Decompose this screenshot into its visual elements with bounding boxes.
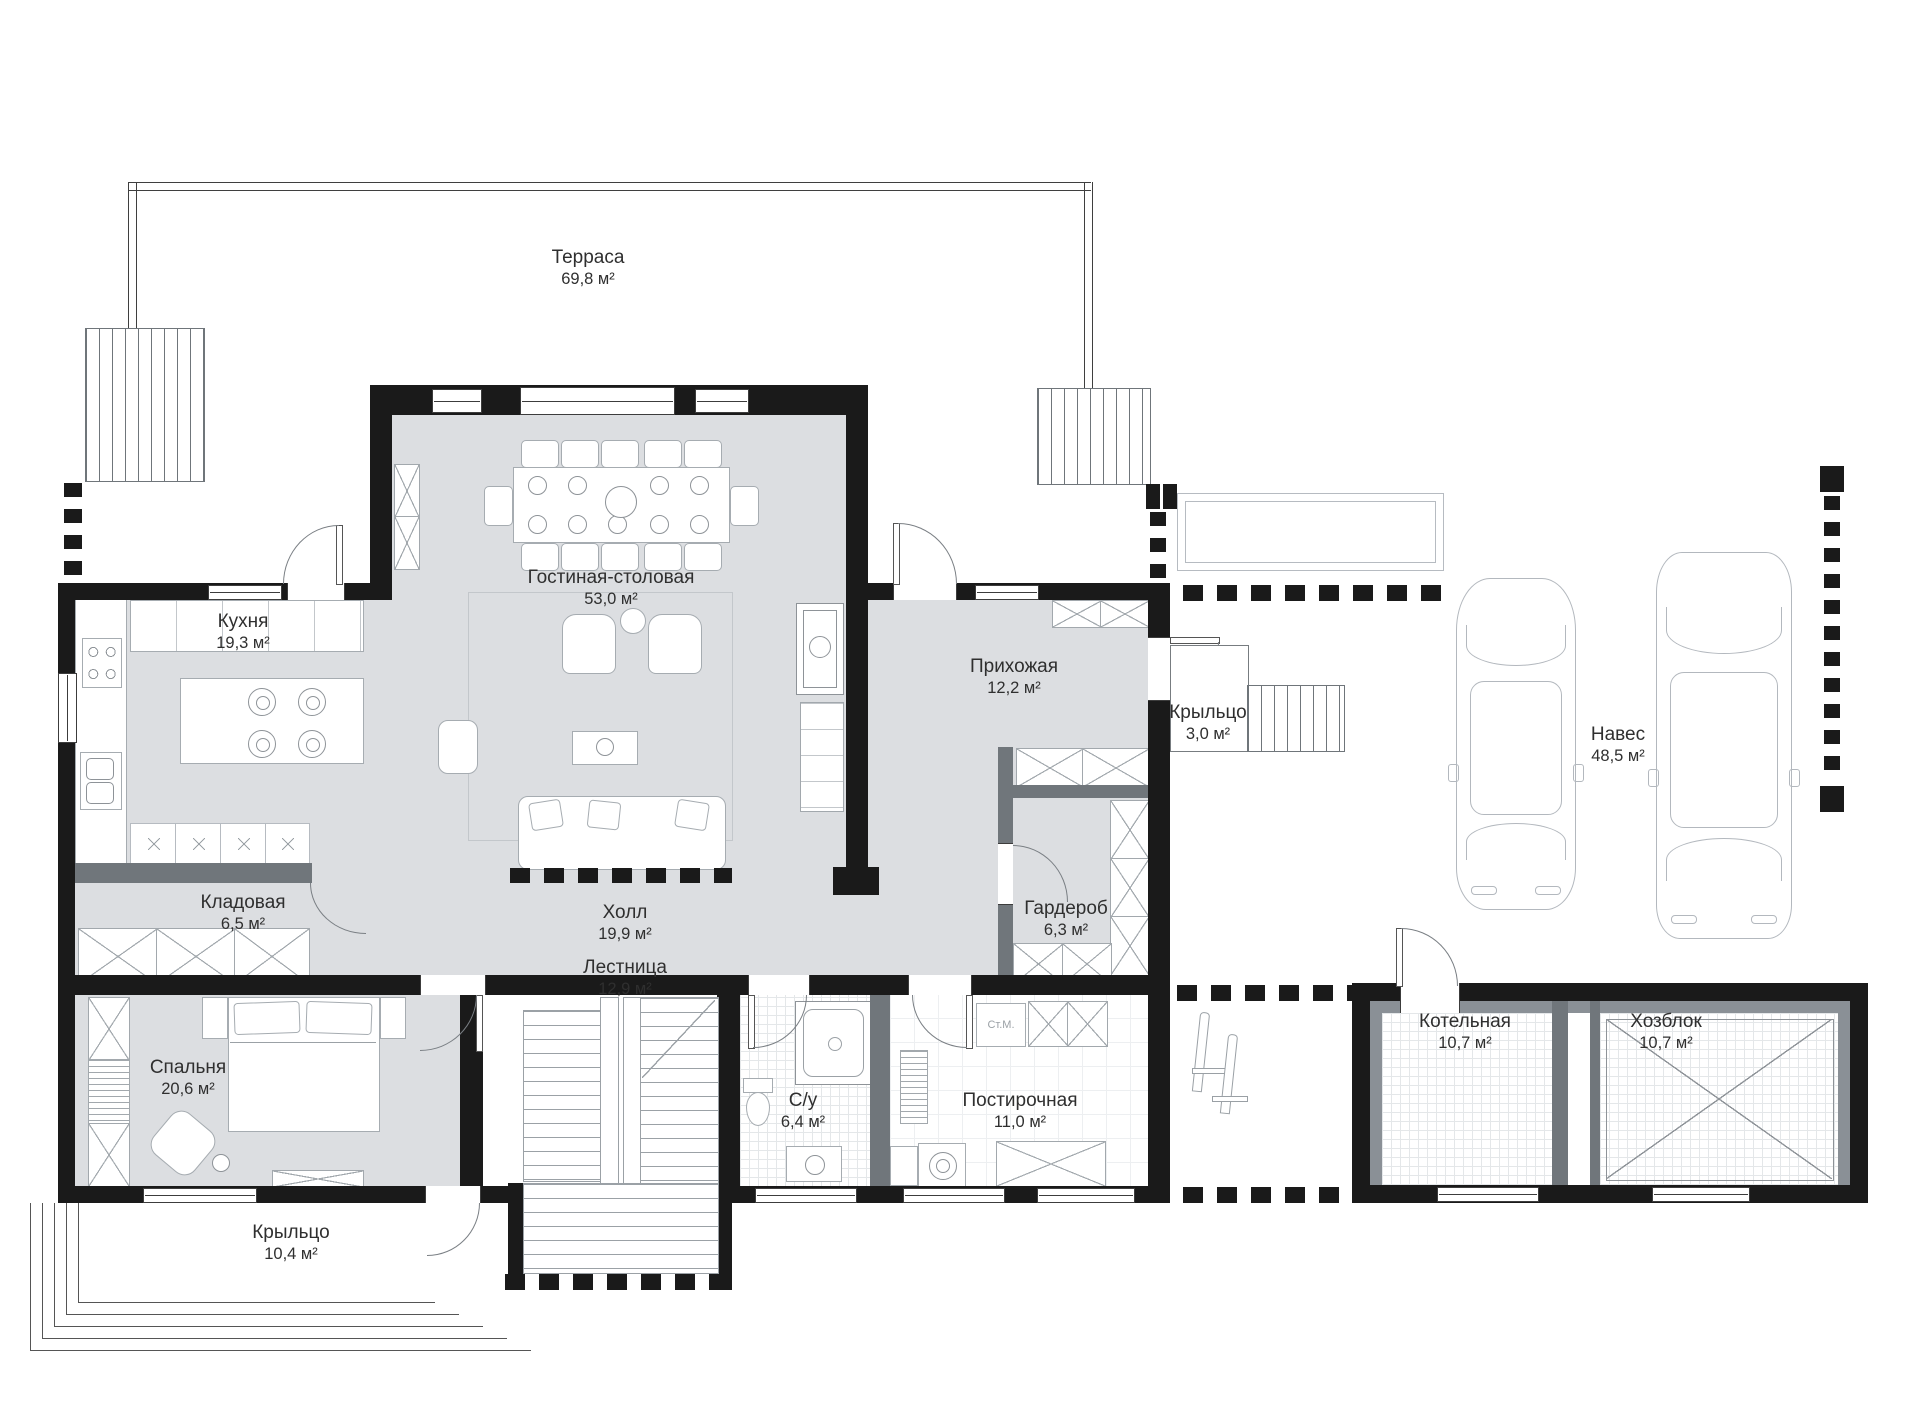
equipment-glyph <box>1220 1034 1238 1115</box>
window-large <box>520 387 675 415</box>
room-label-kitchen: Кухня 19,3 м² <box>143 610 343 653</box>
car-rear-window <box>1466 625 1566 666</box>
dining-chair <box>644 440 682 468</box>
bathroom-door-opening <box>748 975 810 995</box>
car-windshield <box>1466 823 1566 860</box>
nightstand <box>202 997 228 1039</box>
kitchen-terrace-door-opening <box>287 583 345 600</box>
room-label-stairs: Лестница 12,9 м² <box>525 956 725 999</box>
room-name: Прихожая <box>914 655 1114 678</box>
bar-stool <box>248 688 276 716</box>
place-setting <box>528 476 547 495</box>
side-table <box>620 608 646 634</box>
dashed-link-bottom <box>1183 1187 1352 1203</box>
open-beam-living-hall <box>510 868 732 883</box>
sink-bowl <box>86 758 114 780</box>
window <box>432 389 482 413</box>
outbuilding-wall-right <box>1850 983 1868 1203</box>
room-name: Лестница <box>525 956 725 979</box>
room-label-living-dining: Гостиная-столовая 53,0 м² <box>486 566 736 609</box>
room-name: Постирочная <box>920 1089 1120 1112</box>
entrance-door-opening <box>1148 637 1170 701</box>
staircase-rail <box>618 997 624 1183</box>
equipment-glyph <box>1192 1068 1228 1074</box>
room-name: Кухня <box>143 610 343 633</box>
sink-bowl <box>86 782 114 804</box>
room-name: Хозблок <box>1566 1010 1766 1033</box>
room-name: Холл <box>525 901 725 924</box>
bar-stool <box>248 730 276 758</box>
room-label-entry-porch: Крыльцо 3,0 м² <box>1133 701 1283 744</box>
place-setting <box>568 476 587 495</box>
room-area: 6,5 м² <box>143 914 343 934</box>
bar-stool <box>298 730 326 758</box>
room-label-utility-block: Хозблок 10,7 м² <box>1566 1010 1766 1053</box>
hall-closet <box>1016 748 1084 788</box>
outbuilding-lining-right <box>1838 1013 1850 1185</box>
laundry-cabinet <box>1067 1001 1108 1047</box>
car-mirror <box>1648 769 1659 787</box>
room-area: 48,5 м² <box>1518 746 1718 766</box>
dining-chair <box>521 440 559 468</box>
room-area: 10,4 м² <box>191 1244 391 1264</box>
room-label-storage: Кладовая 6,5 м² <box>143 891 343 934</box>
door-leaf <box>966 995 973 1049</box>
sideboard-cabinet <box>394 464 420 518</box>
stair-exit-treads <box>523 1183 719 1274</box>
dashed-link-top <box>1177 985 1352 1001</box>
room-area: 69,8 м² <box>488 269 688 289</box>
sideboard-cabinet <box>394 516 420 570</box>
log-post-column-right <box>1150 512 1166 578</box>
door-arc-entry-terrace <box>898 523 957 584</box>
kitchen-base-cabinet <box>265 823 310 865</box>
car-mirror <box>1448 764 1459 782</box>
kitchen-base-cabinet <box>175 823 222 865</box>
pergola-bench <box>1177 493 1444 571</box>
door-arc-boiler <box>1401 928 1458 986</box>
washing-machine: Ст.М. <box>976 1003 1026 1047</box>
room-area: 12,9 м² <box>525 979 725 999</box>
dining-chair <box>484 486 513 526</box>
car-headlight <box>1751 915 1777 924</box>
fence-post <box>1820 786 1844 812</box>
room-area: 6,3 м² <box>966 920 1166 940</box>
wood-stove-burner <box>809 636 831 658</box>
washing-machine-label: Ст.М. <box>987 1019 1014 1031</box>
room-name: Крыльцо <box>1133 701 1283 724</box>
window-armchair <box>438 720 478 774</box>
room-label-bathroom: С/у 6,4 м² <box>703 1089 903 1132</box>
room-label-terrace: Терраса 69,8 м² <box>488 246 688 289</box>
room-name: Котельная <box>1365 1010 1565 1033</box>
wall-living-left <box>370 385 392 597</box>
car-rear-window <box>1666 607 1782 654</box>
terrace-steps-left <box>85 328 205 482</box>
hall-closet <box>1052 600 1102 628</box>
laundry-door-opening <box>908 975 972 995</box>
sofa-pillow <box>528 799 564 832</box>
laundry-cabinet <box>1028 1001 1069 1047</box>
shelf-cabinet <box>800 702 844 812</box>
floor-plan-canvas: Ст.М. <box>0 0 1927 1404</box>
room-label-wardrobe: Гардероб 6,3 м² <box>966 897 1166 940</box>
wardrobe-cabinet <box>1110 800 1150 860</box>
terrace-railing-right <box>1084 182 1093 390</box>
window <box>695 389 749 413</box>
dryer-drum-inner <box>936 1159 950 1173</box>
equipment-glyph <box>1192 1012 1210 1093</box>
terrace-steps-right <box>1037 388 1151 485</box>
porch-door-opening <box>425 1186 481 1203</box>
place-setting <box>650 476 669 495</box>
window <box>58 673 77 743</box>
room-area: 19,3 м² <box>143 633 343 653</box>
room-label-carport: Навес 48,5 м² <box>1518 723 1718 766</box>
bar-stool <box>298 688 326 716</box>
place-setting <box>650 515 669 534</box>
shower-drain <box>828 1037 842 1051</box>
laundry-sink-cabinet <box>890 1146 918 1186</box>
car-headlight <box>1671 915 1697 924</box>
sofa-pillow <box>587 799 622 830</box>
armchair <box>648 614 702 674</box>
room-area: 11,0 м² <box>920 1112 1120 1132</box>
hob <box>82 638 122 688</box>
room-label-bedroom: Спальня 20,6 м² <box>88 1056 288 1099</box>
room-area: 20,6 м² <box>88 1079 288 1099</box>
place-setting <box>690 476 709 495</box>
window <box>1437 1187 1539 1202</box>
car-mirror <box>1573 764 1584 782</box>
place-setting <box>568 515 587 534</box>
place-setting <box>690 515 709 534</box>
pillow <box>233 1001 300 1035</box>
room-label-laundry: Постирочная 11,0 м² <box>920 1089 1120 1132</box>
room-area: 10,7 м² <box>1566 1033 1766 1053</box>
equipment-glyph <box>1212 1096 1248 1102</box>
place-setting <box>528 515 547 534</box>
room-area: 10,7 м² <box>1365 1033 1565 1053</box>
dryer <box>918 1143 966 1187</box>
dining-chair <box>684 440 722 468</box>
log-post-column-left <box>64 483 82 581</box>
wood-stove <box>796 603 844 695</box>
stair-exit-dashes <box>505 1274 737 1290</box>
room-name: Кладовая <box>143 891 343 914</box>
terrace-railing-top <box>128 182 1091 191</box>
entry-terrace-door-opening <box>893 583 957 600</box>
nightstand <box>380 997 406 1039</box>
kitchen-base-cabinet <box>130 823 177 865</box>
boiler-door-opening <box>1400 983 1460 1013</box>
wall-living-right <box>846 385 868 895</box>
car-mirror <box>1789 769 1800 787</box>
room-area: 3,0 м² <box>1133 724 1283 744</box>
car-headlight <box>1471 886 1497 895</box>
room-name: Гостиная-столовая <box>486 566 736 589</box>
room-area: 53,0 м² <box>486 589 736 609</box>
room-label-entry-hall: Прихожая 12,2 м² <box>914 655 1114 698</box>
table-centerpiece <box>605 486 637 518</box>
window <box>143 1188 257 1203</box>
partition-storage <box>75 863 312 883</box>
wall-post <box>833 867 879 895</box>
kitchen-base-cabinet <box>220 823 267 865</box>
window <box>1652 1187 1750 1202</box>
bedroom-side-table <box>212 1154 230 1172</box>
sink-basin <box>805 1155 825 1175</box>
room-name: Гардероб <box>966 897 1166 920</box>
kitchen-sink <box>80 752 122 810</box>
dashed-wall-carport-top <box>1183 585 1448 601</box>
bedroom-door-opening <box>420 975 486 995</box>
coffee-table-decor <box>596 738 614 756</box>
car-windshield <box>1666 838 1782 881</box>
room-name: Спальня <box>88 1056 288 1079</box>
dining-chair <box>561 440 599 468</box>
pergola-bench-inner-line <box>1185 501 1436 563</box>
laundry-cabinet <box>996 1141 1106 1187</box>
window <box>208 585 282 600</box>
log-post <box>1163 484 1177 509</box>
partition-wardrobe-top <box>1013 785 1150 798</box>
room-label-boiler-room: Котельная 10,7 м² <box>1365 1010 1565 1053</box>
dining-chair <box>601 440 639 468</box>
room-area: 12,2 м² <box>914 678 1114 698</box>
place-setting <box>608 515 627 534</box>
bedroom-closet <box>88 1123 130 1187</box>
outbuilding-wall-bottom <box>1352 1185 1868 1203</box>
door-arc-kitchen-terrace <box>283 525 339 584</box>
log-post <box>1146 484 1160 509</box>
room-name: Навес <box>1518 723 1718 746</box>
window <box>903 1188 1005 1203</box>
room-name: С/у <box>703 1089 903 1112</box>
window <box>975 585 1039 600</box>
window <box>1037 1188 1135 1203</box>
room-area: 19,9 м² <box>525 924 725 944</box>
room-area: 6,4 м² <box>703 1112 903 1132</box>
fence-dashes <box>1824 496 1840 782</box>
door-leaf <box>476 995 483 1052</box>
terrace-railing-left <box>128 182 137 330</box>
bathroom-sink <box>786 1146 842 1182</box>
hall-closet <box>1100 600 1150 628</box>
car-headlight <box>1535 886 1561 895</box>
window <box>755 1188 857 1203</box>
dining-chair <box>730 486 759 526</box>
room-name: Крыльцо <box>191 1221 391 1244</box>
staircase-break-line <box>642 1000 715 1078</box>
room-label-hall: Холл 19,9 м² <box>525 901 725 944</box>
armchair <box>562 614 616 674</box>
fence-post <box>1820 466 1844 492</box>
wardrobe-door-opening <box>998 843 1013 905</box>
bedroom-closet <box>88 997 130 1061</box>
sofa-pillow <box>674 799 710 832</box>
room-name: Терраса <box>488 246 688 269</box>
hall-closet <box>1082 748 1150 788</box>
room-label-main-porch: Крыльцо 10,4 м² <box>191 1221 391 1264</box>
shower <box>795 1001 872 1085</box>
pillow <box>305 1001 372 1035</box>
blanket-line <box>230 1042 376 1043</box>
staircase-flight-left <box>523 1010 602 1182</box>
